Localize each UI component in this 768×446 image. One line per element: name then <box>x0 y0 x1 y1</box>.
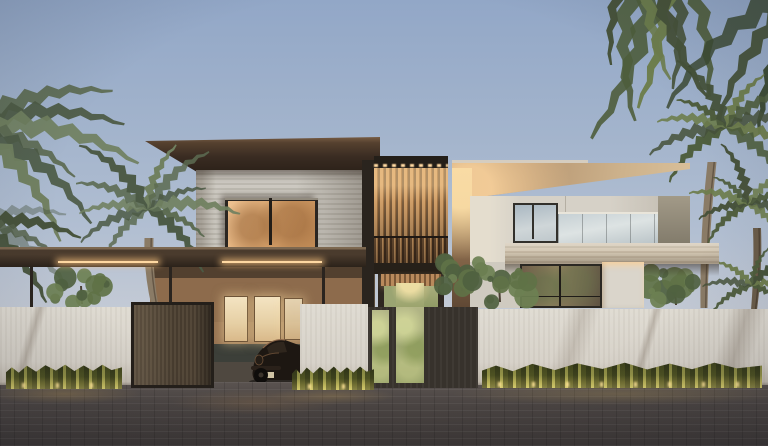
villa-render <box>0 0 768 446</box>
moss-stone-panel <box>372 310 389 383</box>
led-strip <box>58 261 158 263</box>
entrance-dark-wall <box>368 307 478 388</box>
hedge-uplights <box>292 384 374 389</box>
led-strip <box>222 261 322 263</box>
hedge-uplights <box>6 383 122 388</box>
hedge-uplights <box>482 382 762 387</box>
carport-canopy <box>0 247 366 267</box>
canopy-post <box>322 267 325 308</box>
entry-gate <box>131 302 214 388</box>
canopy-post <box>30 267 33 308</box>
driveway <box>0 382 768 446</box>
moss-stone-door <box>396 307 424 383</box>
